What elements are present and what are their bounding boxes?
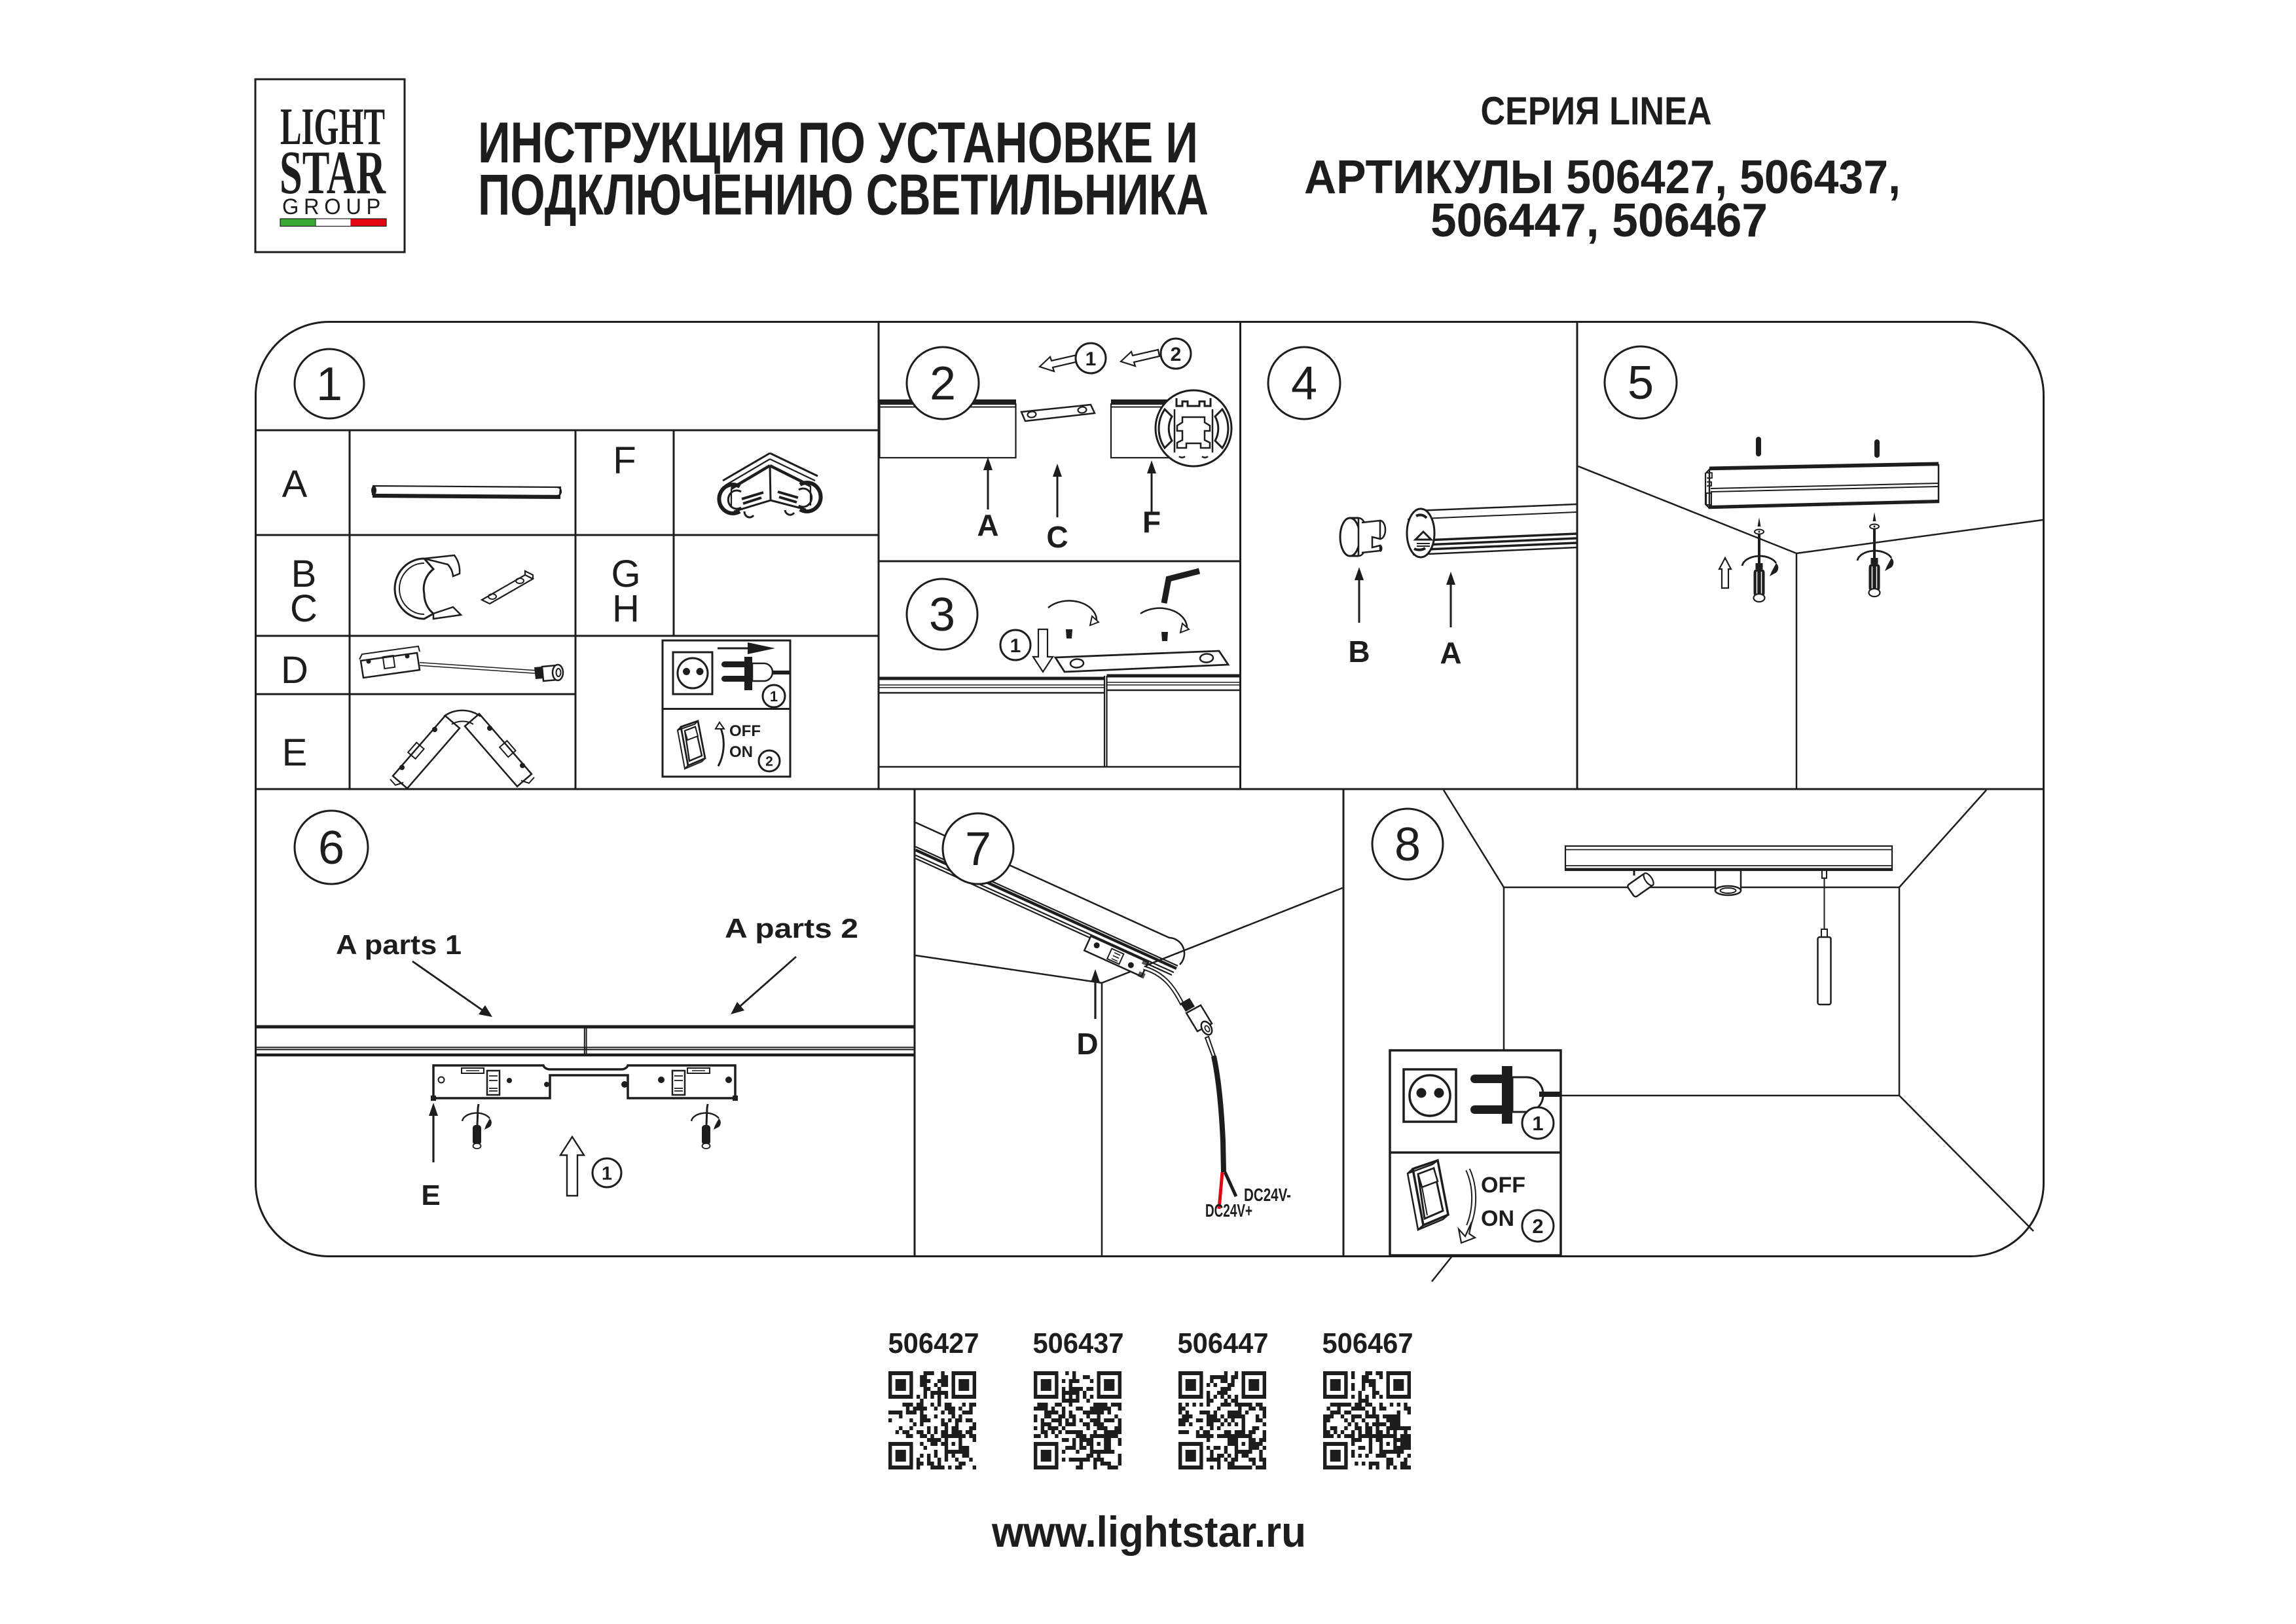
svg-text:1: 1 xyxy=(1532,1112,1543,1135)
svg-text:506447, 506467: 506447, 506467 xyxy=(1430,194,1768,247)
svg-text:7: 7 xyxy=(965,823,991,876)
svg-text:1: 1 xyxy=(1085,348,1097,370)
svg-text:1: 1 xyxy=(602,1163,612,1184)
svg-text:506467: 506467 xyxy=(1322,1327,1413,1359)
svg-text:A parts 2: A parts 2 xyxy=(725,913,858,944)
svg-text:ПОДКЛЮЧЕНИЮ СВЕТИЛЬНИКА: ПОДКЛЮЧЕНИЮ СВЕТИЛЬНИКА xyxy=(478,162,1209,227)
svg-text:СЕРИЯ LINEA: СЕРИЯ LINEA xyxy=(1481,89,1712,133)
svg-text:F: F xyxy=(613,439,636,482)
svg-text:A parts 1: A parts 1 xyxy=(336,929,462,960)
svg-text:ON: ON xyxy=(729,743,753,761)
svg-text:DC24V+: DC24V+ xyxy=(1205,1200,1252,1221)
svg-text:A: A xyxy=(1440,636,1461,670)
svg-text:1: 1 xyxy=(316,358,342,411)
svg-text:1: 1 xyxy=(1010,635,1021,657)
svg-text:506427: 506427 xyxy=(888,1327,979,1359)
svg-text:506437: 506437 xyxy=(1033,1327,1124,1359)
svg-text:2: 2 xyxy=(930,358,956,410)
svg-text:C: C xyxy=(290,587,318,630)
svg-text:A: A xyxy=(282,463,308,506)
svg-text:3: 3 xyxy=(929,589,955,641)
svg-text:www.lightstar.ru: www.lightstar.ru xyxy=(991,1507,1306,1556)
svg-text:1: 1 xyxy=(770,688,778,705)
svg-text:C: C xyxy=(1046,520,1068,554)
svg-text:8: 8 xyxy=(1394,819,1421,871)
svg-text:D: D xyxy=(281,649,308,692)
svg-text:4: 4 xyxy=(1291,358,1317,410)
svg-text:5: 5 xyxy=(1628,357,1654,409)
svg-text:F: F xyxy=(1142,505,1161,539)
svg-text:2: 2 xyxy=(1171,344,1182,365)
svg-text:2: 2 xyxy=(1532,1215,1543,1238)
svg-text:GROUP: GROUP xyxy=(282,194,386,219)
svg-text:B: B xyxy=(1348,635,1370,669)
svg-text:E: E xyxy=(421,1179,440,1211)
svg-text:506447: 506447 xyxy=(1178,1327,1269,1359)
svg-text:2: 2 xyxy=(765,754,773,769)
svg-text:ON: ON xyxy=(1481,1206,1514,1231)
svg-text:6: 6 xyxy=(318,822,344,874)
svg-text:OFF: OFF xyxy=(729,722,761,740)
svg-text:D: D xyxy=(1076,1027,1098,1061)
svg-text:A: A xyxy=(977,508,998,542)
svg-text:H: H xyxy=(612,587,640,630)
svg-text:E: E xyxy=(282,731,308,774)
svg-text:OFF: OFF xyxy=(1481,1173,1525,1198)
